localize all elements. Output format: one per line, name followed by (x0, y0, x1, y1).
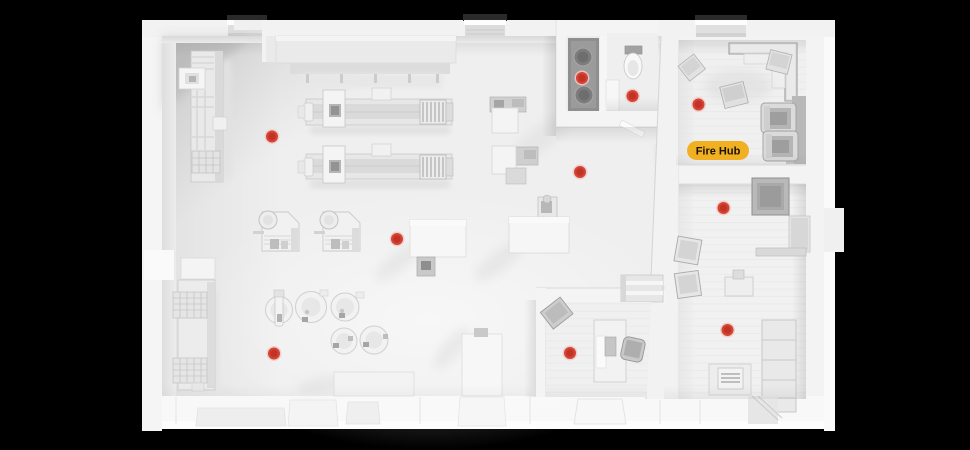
svg-text:Fire Hub: Fire Hub (696, 146, 741, 158)
